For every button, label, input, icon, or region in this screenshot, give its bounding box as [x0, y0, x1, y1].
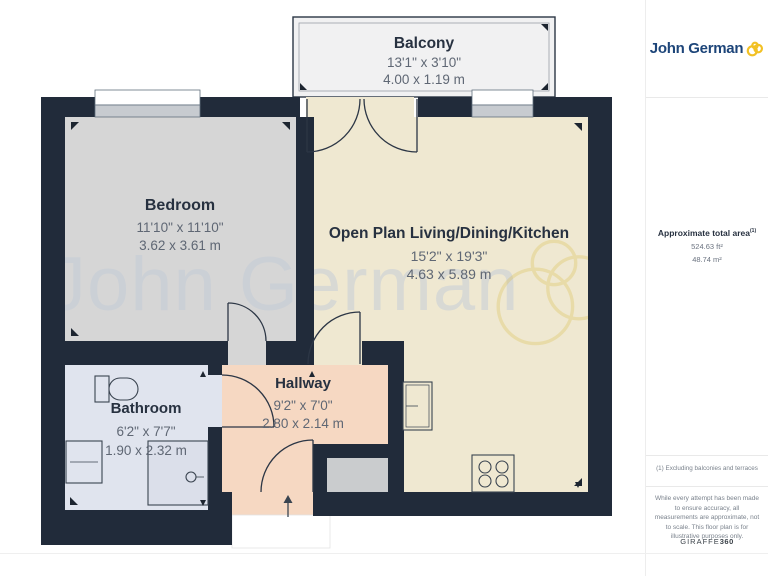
toilet-icon	[95, 376, 138, 402]
provider-logo: GIRAFFE360	[646, 537, 768, 546]
provider-name: GIRAFFE	[680, 537, 720, 546]
balcony-label: Balcony	[394, 35, 455, 52]
area-title: Approximate total area(1)	[646, 228, 768, 238]
sidebar-divider	[646, 486, 768, 487]
bathroom-doorway	[208, 375, 222, 427]
living-label: Open Plan Living/Dining/Kitchen	[329, 225, 569, 242]
sink-icon	[66, 441, 102, 483]
hallway-dims-metric: 2.80 x 2.14 m	[262, 416, 344, 431]
brand-swirl-icon	[746, 41, 764, 57]
entrance-porch	[232, 515, 330, 548]
disclaimer-text: While every attempt has been made to ens…	[654, 494, 760, 542]
bedroom-label: Bedroom	[145, 197, 215, 214]
living-dims-imperial: 15'2" x 19'3"	[411, 248, 488, 264]
floorplan-page: John German	[0, 0, 768, 576]
sidebar: John German Approximate total area(1) 52…	[645, 0, 768, 576]
living-dims-metric: 4.63 x 5.89 m	[407, 266, 492, 282]
sidebar-divider	[646, 97, 768, 98]
bathroom-dims-metric: 1.90 x 2.32 m	[105, 443, 187, 458]
provider-suffix: 360	[720, 537, 734, 546]
area-sqft: 524.63 ft²	[646, 242, 768, 251]
entrance-doorway	[232, 492, 313, 515]
area-title-footnote-marker: (1)	[750, 228, 756, 234]
area-footnote: (1) Excluding balconies and terraces	[646, 465, 768, 472]
living-hall-doorway	[314, 341, 362, 365]
storage-cupboard-floor	[327, 458, 388, 492]
page-bottom-rule	[0, 553, 768, 554]
bedroom-doorway	[228, 341, 266, 365]
bathroom-label: Bathroom	[111, 400, 182, 417]
bedroom-dims-imperial: 11'10" x 11'10"	[136, 220, 223, 235]
balcony-dims-imperial: 13'1" x 3'10"	[387, 55, 461, 70]
hallway-label: Hallway	[275, 375, 332, 392]
floor-plan: John German	[0, 0, 645, 576]
area-sqm: 48.74 m²	[646, 255, 768, 264]
bathroom-dims-imperial: 6'2" x 7'7"	[116, 424, 175, 439]
kitchen-sink-icon	[403, 382, 432, 430]
brand-name: John German	[650, 40, 743, 57]
total-area-block: Approximate total area(1) 524.63 ft² 48.…	[646, 228, 768, 264]
sidebar-divider	[646, 455, 768, 456]
brand-logo: John German	[646, 40, 768, 57]
hallway-dims-imperial: 9'2" x 7'0"	[273, 398, 332, 413]
bedroom-dims-metric: 3.62 x 3.61 m	[139, 238, 221, 253]
area-title-text: Approximate total area	[658, 228, 750, 238]
balcony-dims-metric: 4.00 x 1.19 m	[383, 72, 465, 87]
